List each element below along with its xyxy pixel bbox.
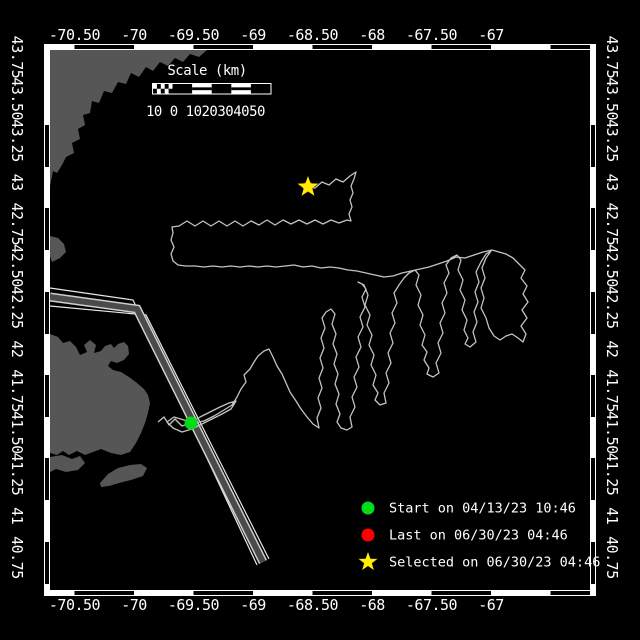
frame-tick-segment — [45, 208, 49, 250]
longitude-label-top: -68.50 — [287, 26, 339, 44]
latitude-label-left: 43.50 — [8, 77, 26, 120]
frame-tick-segment — [194, 45, 254, 49]
longitude-label-bottom: -70.50 — [49, 596, 101, 614]
latitude-label-right: 41.25 — [603, 453, 621, 496]
scale-bar-check — [165, 89, 169, 94]
longitude-label-bottom: -68 — [359, 596, 385, 614]
latitude-label-left: 42.25 — [8, 286, 26, 329]
legend-start-dot-icon — [362, 502, 375, 515]
latitude-label-left: 41 — [8, 507, 26, 525]
longitude-label-bottom: -70 — [121, 596, 147, 614]
longitude-label-top: -70.50 — [49, 26, 101, 44]
longitude-label-top: -70 — [121, 26, 147, 44]
frame-tick-segment — [45, 125, 49, 167]
longitude-label-bottom: -68.50 — [287, 596, 339, 614]
legend-item: Start on 04/13/23 10:46 — [362, 501, 576, 517]
frame-tick-segment — [45, 375, 49, 417]
legend-last-dot-icon — [362, 529, 375, 542]
latitude-label-right: 40.75 — [603, 536, 621, 579]
longitude-label-bottom: -67 — [478, 596, 504, 614]
frame-tick-segment — [591, 208, 595, 250]
scale-bar-check — [161, 84, 165, 89]
frame-tick-segment — [45, 292, 49, 334]
latitude-label-right: 43 — [603, 174, 621, 191]
scale-bar-segment-stripe — [231, 87, 251, 90]
legend-item-label: Selected on 06/30/23 04:46 — [389, 555, 600, 571]
latitude-label-left: 42.50 — [8, 244, 26, 287]
longitude-label-bottom: -69.50 — [168, 596, 220, 614]
frame-tick-segment — [45, 542, 49, 584]
latitude-label-left: 41.50 — [8, 411, 26, 454]
frame-tick-segment — [432, 45, 492, 49]
latitude-label-left: 40.75 — [8, 536, 26, 579]
scale-bar-title: Scale (km) — [167, 63, 246, 79]
frame-tick-segment — [591, 458, 595, 500]
scale-bar-check — [157, 89, 161, 94]
frame-tick-segment — [591, 125, 595, 167]
latitude-label-right: 43.50 — [603, 77, 621, 120]
latitude-label-right: 43.25 — [603, 119, 621, 162]
latitude-label-right: 42 — [603, 340, 621, 357]
latitude-label-left: 41.25 — [8, 453, 26, 496]
longitude-label-top: -69 — [240, 26, 266, 44]
longitude-label-bottom: -67.50 — [406, 596, 458, 614]
latitude-label-right: 41 — [603, 507, 621, 525]
legend-item: Last on 06/30/23 04:46 — [362, 528, 568, 544]
legend-item-label: Last on 06/30/23 04:46 — [389, 528, 568, 544]
frame-tick-segment — [45, 458, 49, 500]
map-canvas[interactable]: -70.50-70.50-70-70-69.50-69.50-69-69-68.… — [0, 0, 640, 640]
scale-bar-numbers: 10 0 1020304050 — [146, 104, 265, 120]
start-position-marker[interactable] — [185, 417, 198, 430]
latitude-label-left: 43.25 — [8, 119, 26, 162]
scale-bar-segment-stripe — [192, 87, 212, 90]
latitude-label-right: 41.50 — [603, 411, 621, 454]
scale-bar-check — [153, 84, 157, 89]
legend-item-label: Start on 04/13/23 10:46 — [389, 501, 576, 517]
longitude-label-bottom: -69 — [240, 596, 266, 614]
latitude-label-right: 42.75 — [603, 202, 621, 245]
latitude-label-left: 42 — [8, 340, 26, 357]
latitude-label-left: 43.75 — [8, 36, 26, 79]
legend-item: Selected on 06/30/23 04:46 — [359, 552, 601, 571]
longitude-label-top: -67.50 — [406, 26, 458, 44]
frame-tick-segment — [75, 45, 135, 49]
frame-tick-segment — [313, 591, 373, 595]
frame-tick-segment — [551, 45, 591, 49]
latitude-label-left: 41.75 — [8, 369, 26, 412]
latitude-label-left: 42.75 — [8, 202, 26, 245]
legend: Start on 04/13/23 10:46Last on 06/30/23 … — [359, 501, 601, 571]
longitude-label-top: -68 — [359, 26, 385, 44]
frame-tick-segment — [313, 45, 373, 49]
glider-map-window: -70.50-70.50-70-70-69.50-69.50-69-69-68.… — [0, 0, 640, 640]
scale-bar-check — [169, 84, 173, 89]
frame-tick-segment — [551, 591, 591, 595]
frame-tick-segment — [75, 591, 135, 595]
latitude-label-left: 43 — [8, 174, 26, 191]
frame-tick-segment — [591, 375, 595, 417]
frame-tick-segment — [432, 591, 492, 595]
latitude-label-right: 42.25 — [603, 286, 621, 329]
latitude-label-right: 43.75 — [603, 36, 621, 79]
latitude-label-right: 41.75 — [603, 369, 621, 412]
longitude-label-top: -69.50 — [168, 26, 220, 44]
longitude-label-top: -67 — [478, 26, 504, 44]
frame-tick-segment — [194, 591, 254, 595]
latitude-label-right: 42.50 — [603, 244, 621, 287]
frame-tick-segment — [591, 292, 595, 334]
